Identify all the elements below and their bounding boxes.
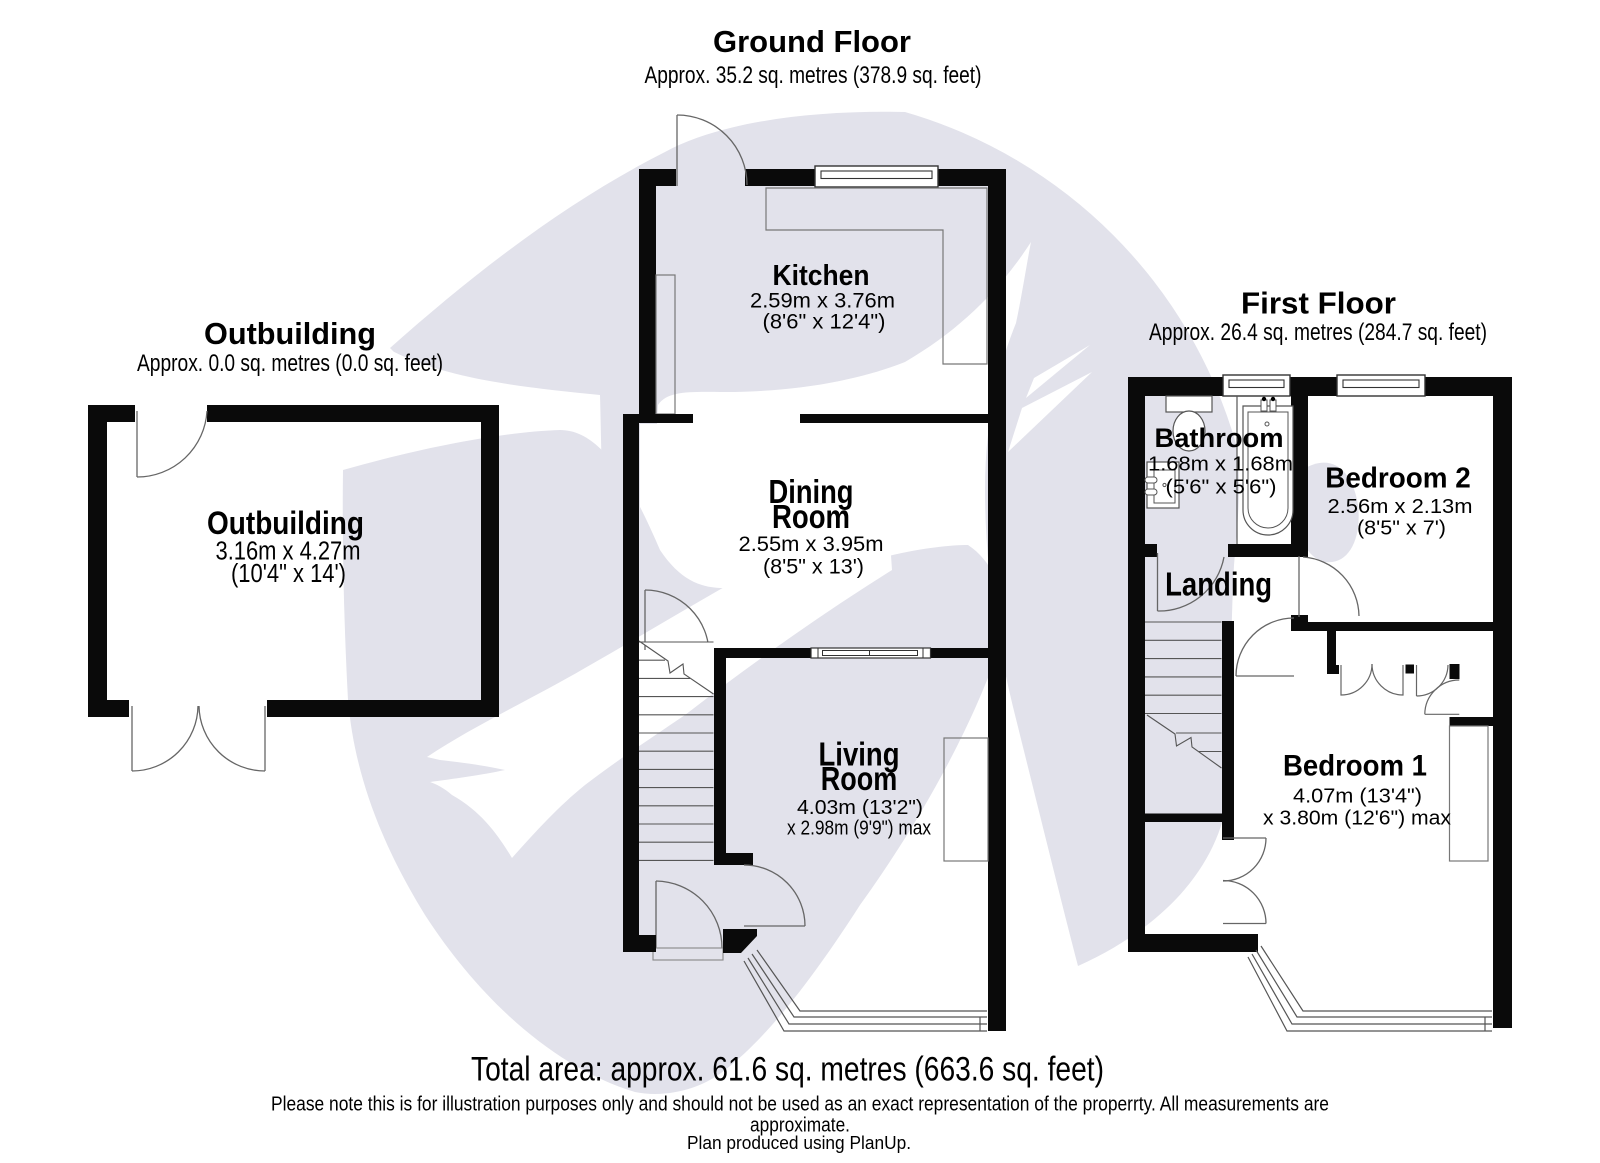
svg-text:1.68m x 1.68m: 1.68m x 1.68m — [1148, 454, 1293, 476]
svg-text:Approx. 0.0 sq. metres (0.0 sq: Approx. 0.0 sq. metres (0.0 sq. feet) — [137, 350, 443, 377]
svg-text:x 3.80m (12'6") max: x 3.80m (12'6") max — [1263, 808, 1451, 830]
svg-text:Landing: Landing — [1165, 566, 1272, 603]
svg-text:First Floor: First Floor — [1241, 286, 1396, 321]
svg-text:Outbuilding: Outbuilding — [207, 505, 364, 541]
svg-text:(8'5" x 13'): (8'5" x 13') — [763, 556, 864, 579]
svg-text:Room: Room — [821, 760, 898, 797]
svg-text:Total area: approx. 61.6 sq. m: Total area: approx. 61.6 sq. metres (663… — [471, 1051, 1104, 1089]
svg-text:Ground Floor: Ground Floor — [713, 24, 911, 59]
svg-text:(5'6" x 5'6"): (5'6" x 5'6") — [1166, 477, 1277, 499]
svg-text:Bedroom 2: Bedroom 2 — [1325, 463, 1471, 495]
svg-text:Approx. 35.2 sq. metres (378.9: Approx. 35.2 sq. metres (378.9 sq. feet) — [645, 62, 982, 89]
svg-text:(10'4" x 14'): (10'4" x 14') — [231, 560, 346, 588]
svg-text:Outbuilding: Outbuilding — [204, 316, 376, 351]
svg-text:x 2.98m (9'9") max: x 2.98m (9'9") max — [787, 817, 932, 840]
svg-text:2.55m x 3.95m: 2.55m x 3.95m — [739, 533, 884, 556]
svg-text:Bathroom: Bathroom — [1155, 423, 1284, 453]
svg-text:Plan produced using PlanUp.: Plan produced using PlanUp. — [687, 1132, 911, 1153]
svg-text:(8'6" x 12'4"): (8'6" x 12'4") — [763, 311, 886, 334]
svg-text:Approx. 26.4 sq. metres (284.7: Approx. 26.4 sq. metres (284.7 sq. feet) — [1149, 319, 1487, 346]
svg-text:2.59m x 3.76m: 2.59m x 3.76m — [750, 290, 895, 313]
svg-text:Room: Room — [772, 499, 850, 536]
svg-text:4.07m (13'4"): 4.07m (13'4") — [1293, 786, 1422, 808]
svg-text:2.56m x 2.13m: 2.56m x 2.13m — [1328, 496, 1473, 518]
svg-text:Kitchen: Kitchen — [773, 260, 870, 292]
svg-text:Bedroom 1: Bedroom 1 — [1283, 751, 1427, 783]
svg-text:(8'5" x 7'): (8'5" x 7') — [1357, 518, 1446, 540]
svg-text:Please note this is for illust: Please note this is for illustration pur… — [271, 1094, 1329, 1116]
